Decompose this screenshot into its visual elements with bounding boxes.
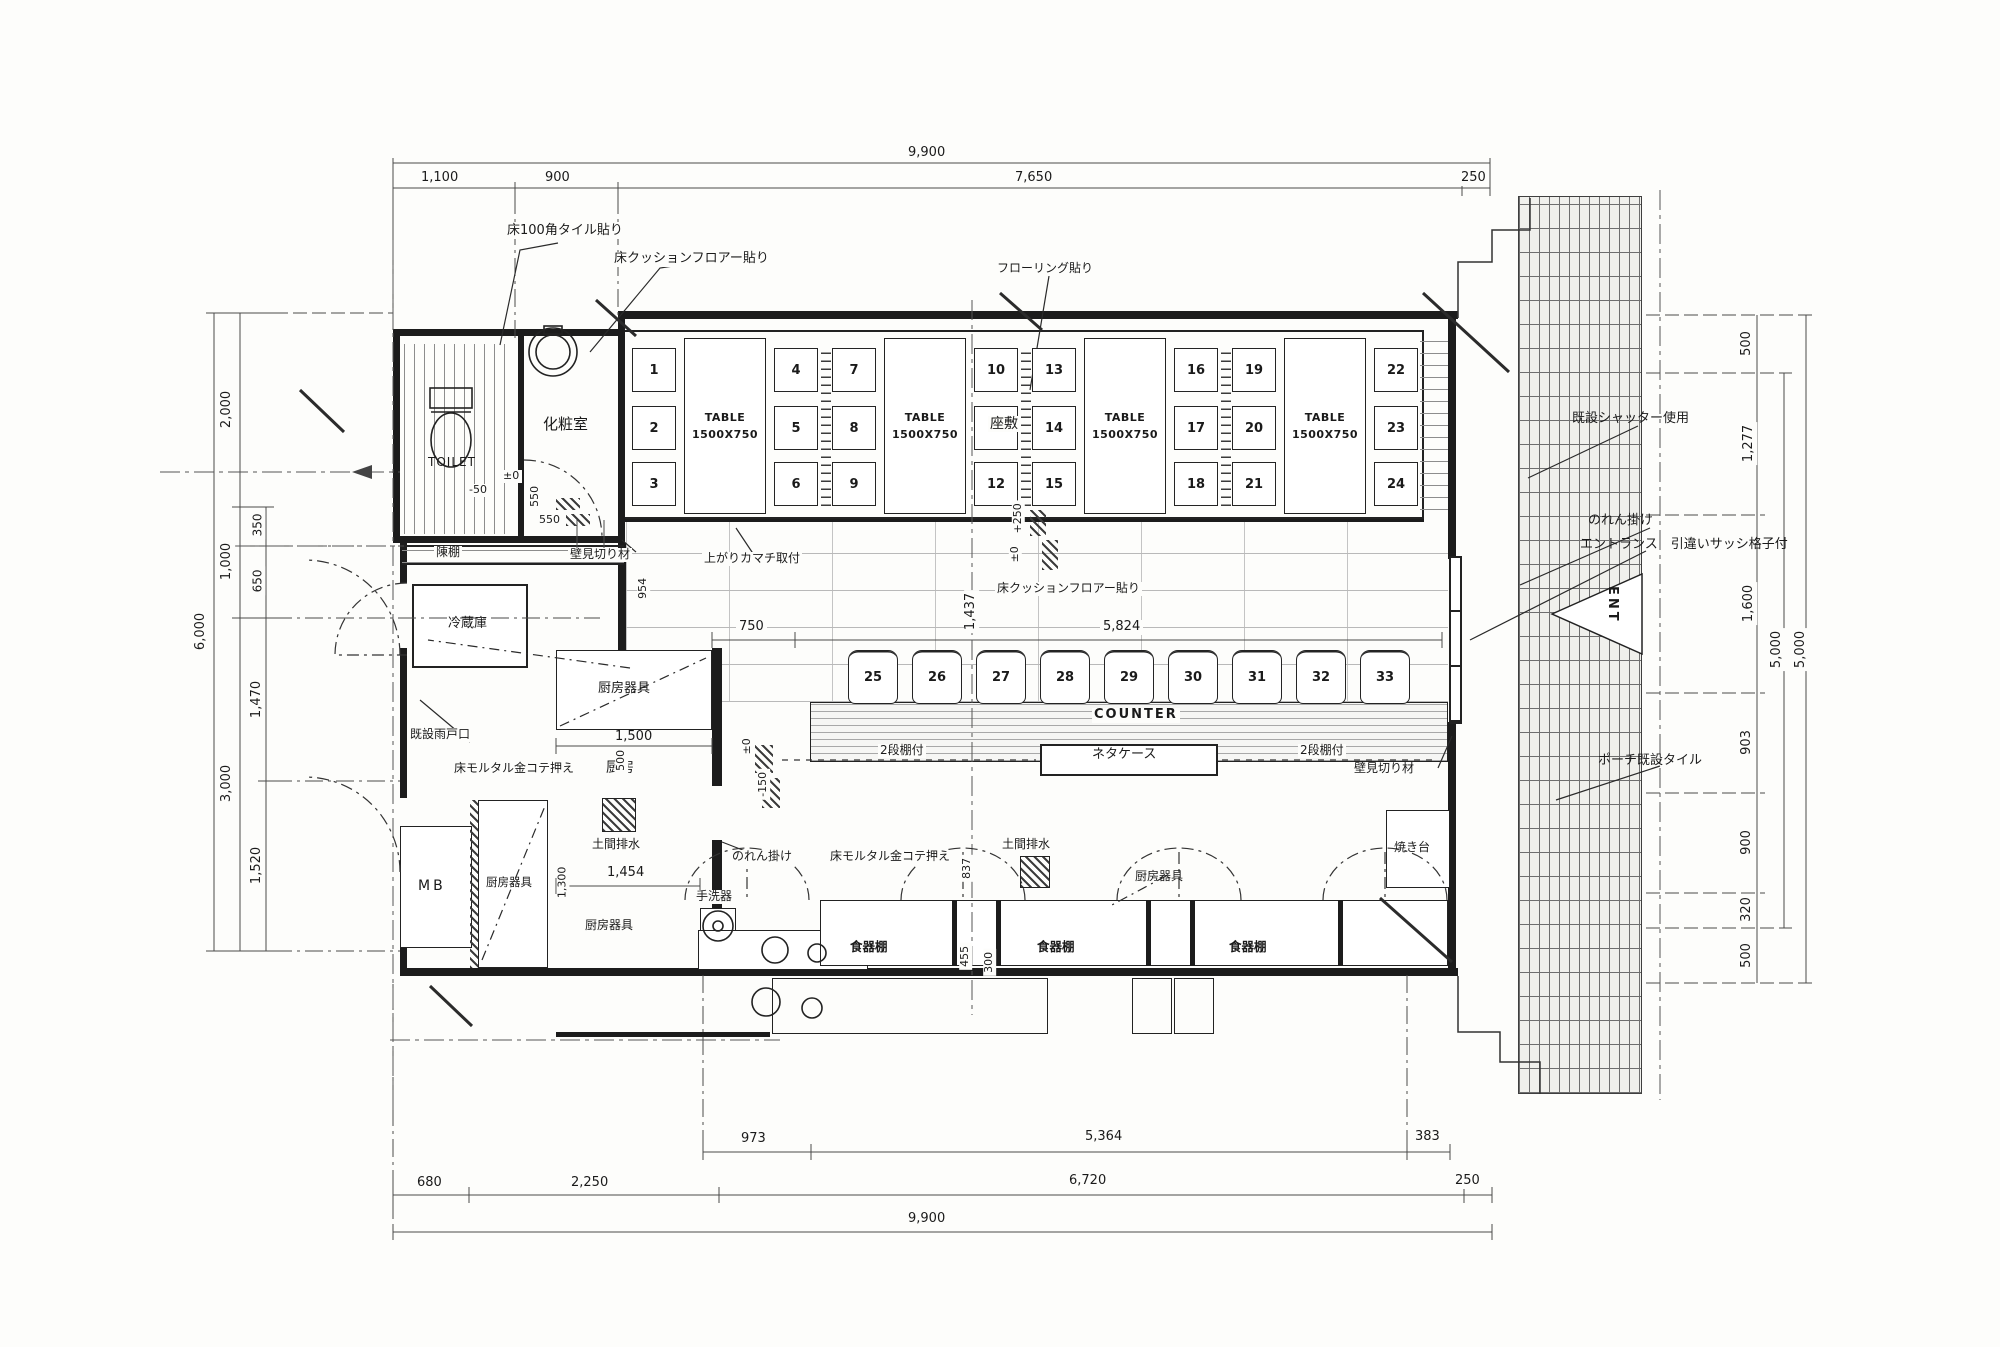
counter-stool: 26 [912,650,962,704]
zashiki-seat: 10 [974,348,1018,392]
dim-label: 550 [529,483,542,510]
handwash-label: 手洗器 [694,890,734,904]
zashiki-seat: 3 [632,462,676,506]
dim-label: 954 [637,575,650,602]
annotation-mortar-floor: 床モルタル金コテ押え [828,850,952,864]
annotation-porch-tile: ポーチ既設タイル [1598,754,1702,769]
zashiki-seat: 9 [832,462,876,506]
dim-label: ±0 [500,470,522,483]
shelf-divider [952,900,957,966]
dim-label: 7,650 [1012,171,1055,186]
dim-label: 900 [542,171,573,186]
floor-drain-label: 土間排水 [1002,838,1050,852]
dim-label: 1,600 [1742,582,1757,625]
mb-label: MB [418,878,446,894]
annotation-noren-hook: のれん掛け [730,850,794,864]
dim-label: ±0 [741,735,754,757]
table-label: TABLE [905,411,946,424]
dim-label: 6,720 [1066,1174,1109,1189]
zashiki-seat: 15 [1032,462,1076,506]
zashiki-seat: 8 [832,406,876,450]
kitchen-equip-label: 厨房器具 [585,919,633,933]
table-label: TABLE [1105,411,1146,424]
entry-step-2 [1174,978,1214,1034]
dim-label: +250 [1012,500,1025,536]
dim-label: -50 [466,484,490,497]
zashiki-seat: 5 [774,406,818,450]
shelf-label: 陳棚 [434,546,462,560]
dim-label: 383 [1412,1130,1443,1145]
dish-shelf-label: 食器棚 [1037,940,1075,954]
dim-label: 1,454 [604,866,647,881]
floor-drain-label: 土間排水 [592,838,640,852]
zashiki-seat: 22 [1374,348,1418,392]
platform-side-strip [1420,340,1448,510]
dim-label: 900 [1740,827,1755,858]
powder-room-label: 化粧室 [543,416,588,433]
mb-wall-hatch [470,800,478,968]
annotation-existing-shutter: 既設シャッター使用 [1572,412,1689,427]
dim-label: 973 [738,1132,769,1147]
zashiki-seat: 7 [832,348,876,392]
counter-stool: 29 [1104,650,1154,704]
table: TABLE 1500X750 [1084,338,1166,514]
step-hatch-zashiki-2 [1042,540,1058,570]
lower-step-block [772,978,1048,1034]
dim-label: 320 [1740,894,1755,925]
kitchen-equip-label: 厨房器具 [1135,870,1183,884]
entry-porch-tile [1518,196,1642,1094]
counter-stool: 25 [848,650,898,704]
wall-left-wing [393,329,400,543]
annotation-flooring: フローリング貼り [995,262,1095,276]
table-label: TABLE [705,411,746,424]
dim-label: 5,364 [1082,1130,1125,1145]
seat-ladder [821,348,831,506]
seat-ladder [1221,348,1231,506]
annotation-existing-door: 既設雨戸口 [408,728,472,742]
step-hatch-toilet-1 [556,498,580,510]
counter-stool: 31 [1232,650,1282,704]
dim-label: 2,000 [220,388,235,431]
annotation-noren-hook: のれん掛け [1588,514,1653,529]
zashiki-seat: 2 [632,406,676,450]
wall-top-main [618,311,1458,319]
zashiki-label: 座敷 [988,416,1020,432]
zashiki-seat: 19 [1232,348,1276,392]
dim-label: 837 [961,855,974,882]
dim-label: 1,470 [250,678,265,721]
dim-label: 5,000 [1770,628,1785,671]
zashiki-seat: 21 [1232,462,1276,506]
wall-wing-bottom [393,536,625,543]
zashiki-seat: 13 [1032,348,1076,392]
zashiki-seat: 14 [1032,406,1076,450]
two-tier-shelf-label: 2段棚付 [878,744,926,758]
dim-label: 500 [615,747,628,774]
counter-stool: 28 [1040,650,1090,704]
dim-label: 1,100 [418,171,461,186]
dim-label: 750 [736,620,767,635]
dim-label: 9,900 [905,1212,948,1227]
dim-label: 1,277 [1742,422,1757,465]
wall-top-wing [393,329,625,336]
dim-label: 9,900 [905,146,948,161]
counter-stool: 27 [976,650,1026,704]
floor-drain-right [1020,856,1050,888]
wall-toilet-partition [518,336,524,540]
dim-label: 1,300 [556,864,569,902]
dim-label: 500 [1740,328,1755,359]
annotation-mortar-floor: 床モルタル金コテ押え [452,762,576,776]
two-tier-shelf-label: 2段棚付 [1298,744,1346,758]
zashiki-seat: 16 [1174,348,1218,392]
entrance-arrow-label: ENT [1604,586,1619,624]
seat-ladder [1021,348,1031,506]
refrigerator-label: 冷蔵庫 [448,617,487,632]
toilet-label: TOILET [428,456,476,470]
dim-label: 5,824 [1100,620,1143,635]
annotation-wall-trim: 壁見切り材 [568,548,632,562]
dim-label: 3,000 [220,762,235,805]
table-size: 1500X750 [1292,428,1358,441]
dim-label: 680 [414,1176,445,1191]
annotation-wall-trim: 壁見切り材 [1352,762,1416,776]
lower-edge-line [556,1032,770,1037]
zashiki-seat: 6 [774,462,818,506]
wall-right-upper [1448,319,1456,559]
step-hatch-toilet-2 [566,514,590,526]
table-size: 1500X750 [1092,428,1158,441]
dish-shelf-label: 食器棚 [1229,940,1267,954]
toilet-tile-floor [404,344,514,534]
table: TABLE 1500X750 [1284,338,1366,514]
wall-bottom-main [400,968,1458,976]
shelf-divider [1146,900,1151,966]
zashiki-seat: 18 [1174,462,1218,506]
dim-label: 5,000 [1794,628,1809,671]
dim-label: 350 [252,510,266,539]
annotation-floor-tile100: 床100角タイル貼り [505,224,625,239]
dim-label: 455 [959,943,972,970]
dim-label: 1,500 [612,730,655,745]
zashiki-seat: 20 [1232,406,1276,450]
dim-label: 903 [1740,727,1755,758]
annotation-cushion-floor: 床クッションフロアー貼り [995,582,1142,596]
dish-shelf-band [820,900,1448,966]
table-size: 1500X750 [692,428,758,441]
grill-label: 焼き台 [1394,841,1430,855]
dim-label: 1,520 [250,844,265,887]
shelf-divider [1190,900,1195,966]
counter-stool: 30 [1168,650,1218,704]
zashiki-seat: 4 [774,348,818,392]
dim-label: 2,250 [568,1176,611,1191]
dim-label: 1,437 [964,590,979,633]
shelf-divider [996,900,1001,966]
wall-powder-right [618,318,625,543]
entry-step-1 [1132,978,1172,1034]
dim-label: -150 [757,769,770,800]
dim-label: ±0 [1009,543,1022,565]
floor-plan-canvas: 1 2 3 4 5 6 7 8 9 10 11 12 13 14 15 16 1… [0,0,2000,1347]
dish-shelf-label: 食器棚 [850,940,888,954]
dim-label: 650 [252,566,266,595]
counter-stool: 32 [1296,650,1346,704]
entrance-sliding-sash [1449,556,1462,724]
dim-label: 250 [1458,171,1489,186]
annotation-cushion-floor: 床クッションフロアー貼り [612,252,771,267]
dim-label: 300 [983,949,996,976]
kitchen-equip-label: 厨房器具 [486,876,532,889]
zashiki-seat: 1 [632,348,676,392]
table-label: TABLE [1305,411,1346,424]
zashiki-seat: 24 [1374,462,1418,506]
dim-label: 550 [536,514,563,527]
annotation-entrance-sash: エントランス 引違いサッシ格子付 [1580,538,1788,553]
zashiki-seat: 23 [1374,406,1418,450]
table-size: 1500X750 [892,428,958,441]
dim-label: 1,000 [220,540,235,583]
dim-label: 6,000 [194,610,209,653]
wall-kitchen-left-2 [400,648,407,798]
neta-case-label: ネタケース [1092,748,1156,763]
counter-stool: 33 [1360,650,1410,704]
kitchen-equip-label: 厨房器具 [598,682,650,697]
table: TABLE 1500X750 [884,338,966,514]
dim-label: 500 [1740,940,1755,971]
floor-drain-left [602,798,636,832]
step-hatch-zashiki-1 [1030,510,1046,536]
dim-label: 250 [1452,1174,1483,1189]
noren-post-upper [712,648,722,786]
table: TABLE 1500X750 [684,338,766,514]
zashiki-seat: 17 [1174,406,1218,450]
annotation-agari-kamachi: 上がりカマチ取付 [702,552,802,566]
shelf-divider [1338,900,1343,966]
counter-label: COUNTER [1092,708,1180,723]
